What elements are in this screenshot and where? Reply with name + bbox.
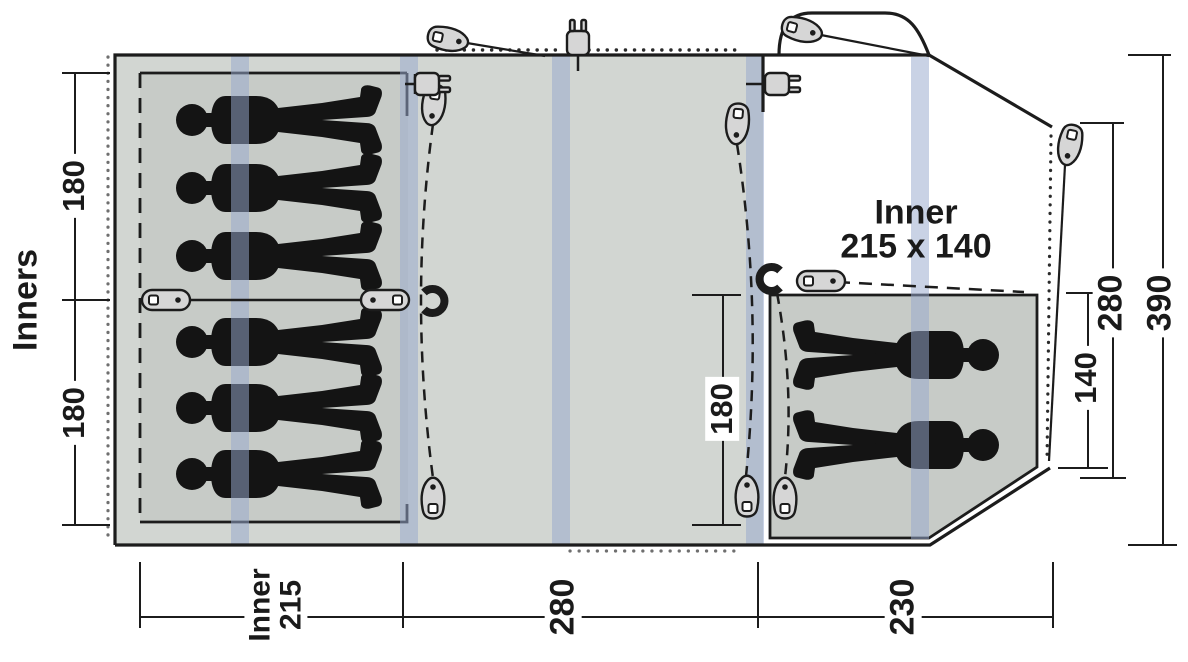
guy-line (821, 35, 929, 56)
porch-dotted-edge (1047, 136, 1051, 462)
peg-icon (1054, 123, 1085, 168)
tent-floorplan-diagram: Inners 180 180 180 Inner 215 x 140 140 2… (0, 0, 1188, 662)
dim-left-inners (62, 73, 110, 525)
dim-label-280-bottom: 280 (545, 573, 582, 642)
peg-icon (779, 14, 824, 47)
dim-label-280-right: 280 (1093, 269, 1130, 338)
plug-icon (567, 20, 589, 55)
peg-icon (422, 478, 445, 519)
dim-label-inner-word: Inner (245, 568, 276, 641)
dim-label-180-bottom: 180 (57, 381, 91, 445)
dim-label-390: 390 (1142, 269, 1179, 338)
dim-label-140: 140 (1069, 346, 1103, 410)
pole-band (911, 57, 929, 539)
right-inner-front-dashed (837, 282, 1024, 292)
dim-label-inner-value: 215 (276, 568, 307, 641)
magnet-icon (760, 267, 780, 291)
right-inner-caption-size: 215 x 140 (840, 230, 991, 265)
plug-icon (765, 73, 800, 95)
right-inner-caption-title: Inner (874, 196, 957, 231)
toggle-icon (142, 290, 190, 310)
peg-icon (774, 478, 797, 519)
inners-side-label: Inners (9, 249, 44, 351)
dim-label-180-living: 180 (705, 377, 739, 441)
peg-icon (736, 476, 759, 517)
toggle-icon (361, 290, 409, 310)
dim-label-180-top: 180 (57, 154, 91, 218)
pole-band (552, 56, 570, 544)
dim-label-inner-215: Inner 215 (244, 562, 307, 647)
toggle-icon (797, 271, 845, 291)
floorplan-drawing (0, 0, 1188, 662)
guy-line (1049, 165, 1065, 461)
dim-label-230-bottom: 230 (885, 573, 922, 642)
